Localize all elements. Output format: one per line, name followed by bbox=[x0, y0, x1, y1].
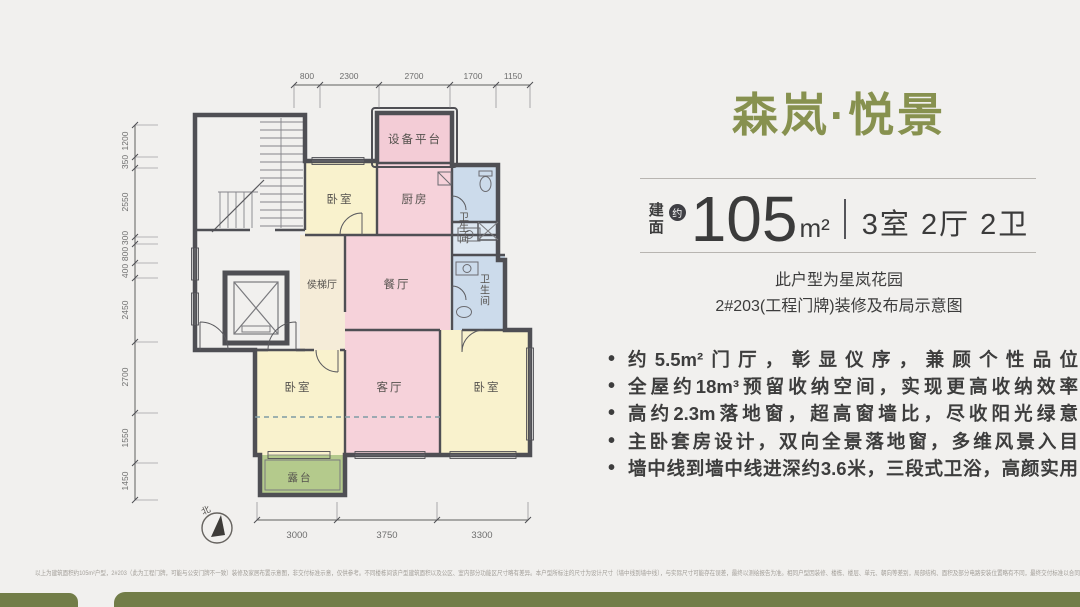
floorplan: 设备平台 卧室 厨房 卫生间 侯梯厅 餐厅 卫生间 卧室 客厅 卧室 露台 bbox=[100, 50, 580, 562]
bullet-icon: • bbox=[608, 346, 628, 373]
info-panel: 森岚·悦景 建面 约 105 m² 3室 2厅 2卫 此户型为星岚花园 2#20… bbox=[598, 88, 1080, 508]
area-label: 建面 bbox=[649, 202, 666, 237]
north-arrow: 北 bbox=[200, 504, 232, 543]
bullet-icon: • bbox=[608, 373, 628, 400]
dim-label: 400 bbox=[120, 264, 130, 278]
selling-point-item: • 约5.5m²门厅，彰显仪序，兼顾个性品位 bbox=[608, 346, 1078, 373]
area-divider bbox=[844, 199, 846, 239]
dim-label: 2450 bbox=[120, 300, 130, 319]
selling-point-item: • 高约2.3m落地窗，超高窗墙比，尽收阳光绿意 bbox=[608, 400, 1078, 427]
label-kitchen: 厨房 bbox=[402, 193, 429, 206]
dim-label: 1150 bbox=[504, 71, 523, 81]
label-bath-top: 卫生间 bbox=[457, 212, 469, 245]
bullet-icon: • bbox=[608, 428, 628, 455]
label-bedroom-top: 卧室 bbox=[327, 192, 354, 206]
subtitle-line2: 2#203(工程门牌)装修及布局示意图 bbox=[598, 292, 1080, 316]
stairwell bbox=[212, 118, 303, 232]
selling-points: • 约5.5m²门厅，彰显仪序，兼顾个性品位 • 全屋约18m³预留收纳空间，实… bbox=[608, 346, 1078, 482]
selling-point-text: 墙中线到墙中线进深约3.6米，三段式卫浴，高颜实用 bbox=[628, 455, 1078, 482]
divider-line-bottom bbox=[640, 252, 1036, 253]
dim-label: 800 bbox=[120, 247, 130, 261]
dim-label: 3300 bbox=[471, 530, 492, 541]
selling-point-item: • 主卧套房设计，双向全景落地窗，多维风景入目 bbox=[608, 428, 1078, 455]
footer-bar-right bbox=[114, 592, 1080, 607]
dim-label: 2700 bbox=[405, 71, 424, 81]
label-bedroom-left: 卧室 bbox=[285, 380, 312, 394]
selling-point-text: 全屋约18m³预留收纳空间，实现更高收纳效率 bbox=[628, 373, 1078, 400]
dim-labels-top: 800 2300 2700 1700 1150 bbox=[300, 71, 523, 81]
page-title: 森岚·悦景 bbox=[598, 88, 1080, 143]
label-bedroom-right: 卧室 bbox=[474, 380, 501, 394]
dim-label: 1200 bbox=[120, 131, 130, 150]
dim-label: 3000 bbox=[286, 530, 307, 541]
dim-label: 1700 bbox=[464, 71, 483, 81]
dim-label: 800 bbox=[300, 71, 314, 81]
label-living: 客厅 bbox=[377, 380, 404, 394]
disclaimer-text: 以上为建筑面积约105m²户型，2#203（此为工程门牌，可能与公安门牌不一致）… bbox=[35, 567, 1080, 577]
selling-point-item: • 墙中线到墙中线进深约3.6米，三段式卫浴，高颜实用 bbox=[608, 455, 1078, 482]
dim-label: 2700 bbox=[120, 367, 130, 386]
dim-label: 3750 bbox=[376, 530, 397, 541]
divider-line-top bbox=[640, 178, 1036, 179]
area-row: 建面 约 105 m² 3室 2厅 2卫 bbox=[598, 188, 1080, 250]
label-elevator-hall: 侯梯厅 bbox=[307, 278, 337, 291]
bullet-icon: • bbox=[608, 455, 628, 482]
room-bedroom-left bbox=[255, 350, 345, 455]
dim-label: 350 bbox=[120, 155, 130, 169]
elevator bbox=[225, 273, 287, 343]
subtitle-line1: 此户型为星岚花园 bbox=[598, 266, 1080, 290]
approx-badge: 约 bbox=[669, 204, 686, 221]
label-bath-bottom: 卫生间 bbox=[478, 274, 490, 307]
label-equipment-platform: 设备平台 bbox=[388, 132, 442, 146]
room-layout: 3室 2厅 2卫 bbox=[862, 195, 1030, 243]
area-value: 105 bbox=[691, 189, 798, 250]
dim-label: 2300 bbox=[340, 71, 359, 81]
bullet-icon: • bbox=[608, 400, 628, 427]
dim-labels-bottom: 3000 3750 3300 bbox=[286, 530, 492, 541]
dim-label: 2550 bbox=[120, 192, 130, 211]
dim-label: 1450 bbox=[120, 471, 130, 490]
label-terrace: 露台 bbox=[288, 471, 313, 484]
footer-bar-left bbox=[0, 593, 78, 607]
dim-labels-left: 1200 350 2550 300 800 400 2450 2700 1550… bbox=[120, 131, 130, 490]
label-dining: 餐厅 bbox=[384, 277, 411, 291]
selling-point-text: 约5.5m²门厅，彰显仪序，兼顾个性品位 bbox=[628, 346, 1078, 373]
selling-point-text: 主卧套房设计，双向全景落地窗，多维风景入目 bbox=[628, 428, 1078, 455]
room-elevator-hall bbox=[300, 235, 345, 350]
flyer: 设备平台 卧室 厨房 卫生间 侯梯厅 餐厅 卫生间 卧室 客厅 卧室 露台 bbox=[0, 0, 1080, 607]
selling-point-text: 高约2.3m落地窗，超高窗墙比，尽收阳光绿意 bbox=[628, 400, 1078, 427]
dim-label: 1550 bbox=[120, 428, 130, 447]
dim-label: 300 bbox=[120, 231, 130, 245]
area-unit: m² bbox=[799, 213, 829, 250]
selling-point-item: • 全屋约18m³预留收纳空间，实现更高收纳效率 bbox=[608, 373, 1078, 400]
